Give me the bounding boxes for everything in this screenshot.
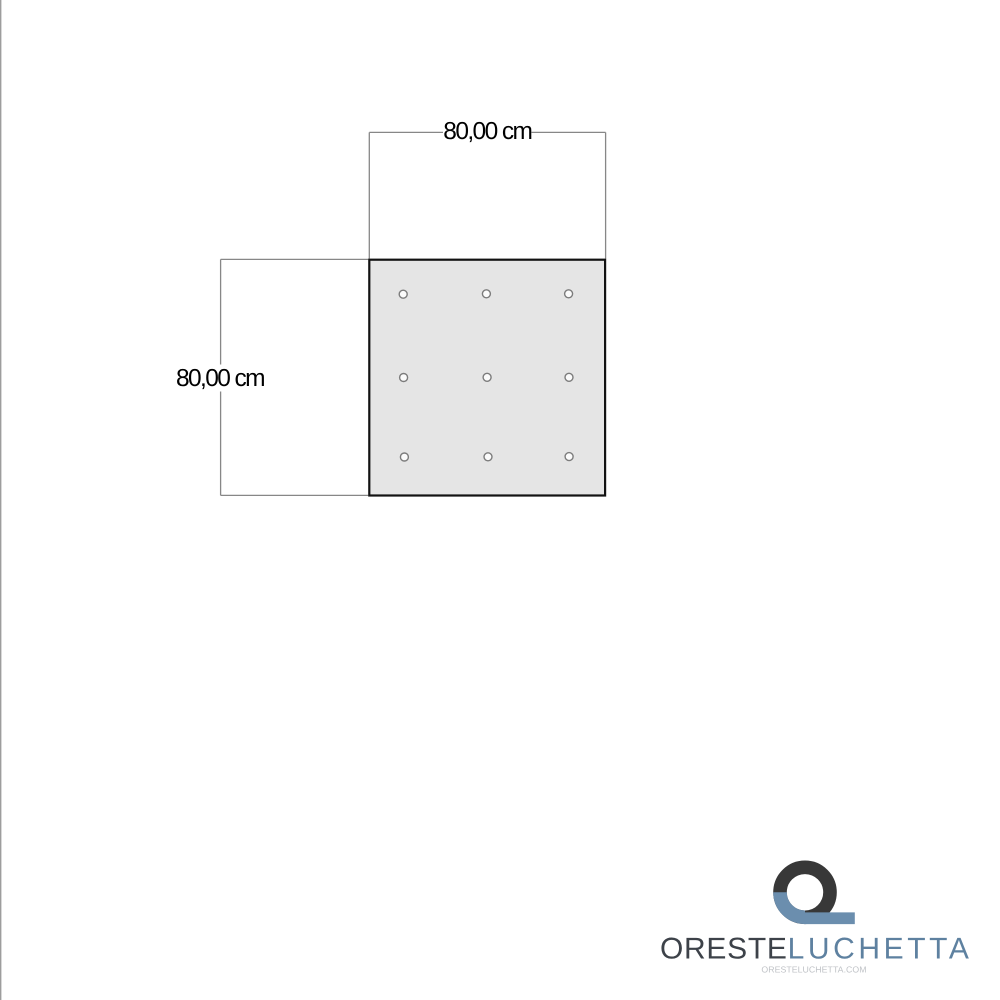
svg-text:ORESTELUCHETTA.COM: ORESTELUCHETTA.COM: [761, 965, 866, 975]
svg-text:ORESTELUCHETTA: ORESTELUCHETTA: [660, 933, 973, 966]
svg-text:80,00 cm: 80,00 cm: [176, 365, 264, 392]
svg-text:80,00 cm: 80,00 cm: [443, 118, 531, 145]
